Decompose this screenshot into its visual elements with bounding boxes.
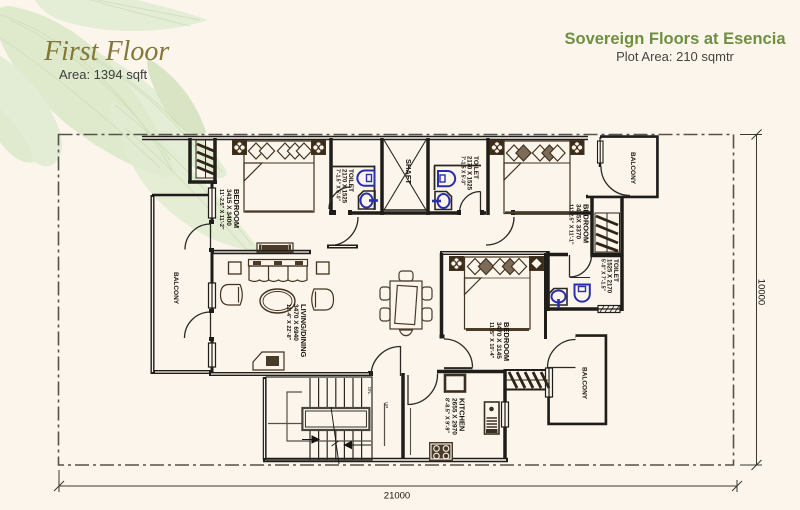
svg-text:Sovereign Floors at Esencia: Sovereign Floors at Esencia	[565, 30, 787, 48]
svg-text:BEDROOM: BEDROOM	[582, 204, 591, 243]
svg-text:11'-2.5" X 11'-2": 11'-2.5" X 11'-2"	[218, 189, 224, 230]
svg-text:LIVING/DINING: LIVING/DINING	[299, 304, 308, 358]
svg-text:BALCONY: BALCONY	[581, 367, 588, 400]
svg-text:BALCONY: BALCONY	[172, 272, 179, 305]
svg-text:BEDROOM: BEDROOM	[232, 189, 241, 228]
svg-text:BEDROOM: BEDROOM	[502, 322, 511, 361]
svg-text:TOILET: TOILET	[472, 156, 479, 179]
svg-text:3470 X 3145: 3470 X 3145	[495, 322, 502, 359]
svg-text:3470 X 6940: 3470 X 6940	[292, 304, 299, 341]
svg-text:BALCONY: BALCONY	[629, 152, 636, 185]
svg-text:7'-1.5 X 5'-0": 7'-1.5 X 5'-0"	[460, 156, 466, 186]
svg-text:TOILET: TOILET	[612, 259, 619, 282]
svg-text:8'-8.5" X 9'-9": 8'-8.5" X 9'-9"	[444, 398, 450, 433]
svg-text:Area: 1394 sqft: Area: 1394 sqft	[59, 67, 148, 82]
svg-text:2655 X 2970: 2655 X 2970	[451, 398, 458, 435]
svg-text:TOILET: TOILET	[347, 169, 354, 192]
svg-text:DN.: DN.	[367, 387, 372, 395]
svg-text:11'-2.5" X 11'-1": 11'-2.5" X 11'-1"	[568, 204, 574, 245]
svg-text:SHAFT: SHAFT	[404, 159, 413, 184]
svg-text:KITCHEN: KITCHEN	[458, 398, 467, 431]
svg-text:3415 X 3400: 3415 X 3400	[225, 189, 232, 226]
svg-text:Plot Area: 210 sqmtr: Plot Area: 210 sqmtr	[616, 49, 734, 64]
svg-text:7'-1.5" X 5'-0": 7'-1.5" X 5'-0"	[335, 169, 341, 201]
svg-text:11'-5" X 10'-4": 11'-5" X 10'-4"	[488, 322, 494, 359]
svg-text:21000: 21000	[384, 491, 410, 502]
svg-text:3415X 3370: 3415X 3370	[575, 204, 582, 239]
svg-text:11'-4" X 22'-8": 11'-4" X 22'-8"	[285, 304, 291, 341]
svg-text:5'-0" X 7'-1.5": 5'-0" X 7'-1.5"	[600, 259, 606, 291]
svg-text:UP: UP	[384, 402, 389, 408]
svg-text:First Floor: First Floor	[43, 36, 169, 67]
svg-text:10000: 10000	[756, 279, 767, 305]
